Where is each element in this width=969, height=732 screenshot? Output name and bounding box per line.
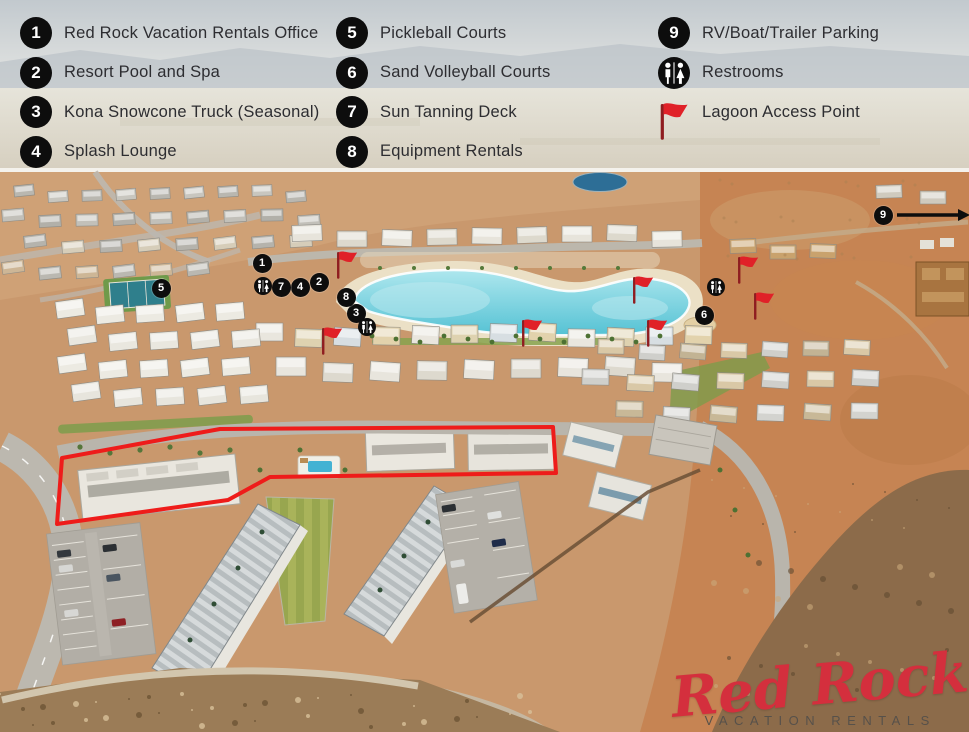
legend-label: Kona Snowcone Truck (Seasonal) (64, 103, 319, 122)
map-legend: 1Red Rock Vacation Rentals Office2Resort… (20, 17, 879, 175)
map-marker-4: 4 (291, 278, 310, 297)
legend-item: 8Equipment Rentals (336, 136, 658, 168)
legend-label: RV/Boat/Trailer Parking (702, 24, 879, 43)
legend-item: 3Kona Snowcone Truck (Seasonal) (20, 96, 336, 128)
legend-number-icon-2: 2 (20, 57, 52, 89)
map-marker-1: 1 (253, 254, 272, 273)
map-marker-8: 8 (337, 288, 356, 307)
legend-label: Sun Tanning Deck (380, 103, 517, 122)
legend-label: Red Rock Vacation Rentals Office (64, 24, 318, 43)
resort-map: 123456789 1Red Rock Vacation Rentals Off… (0, 0, 969, 732)
map-restrooms-marker (707, 278, 725, 296)
map-restrooms-marker (358, 318, 376, 336)
map-marker-6: 6 (695, 306, 714, 325)
map-restrooms-marker (254, 277, 272, 295)
legend-label: Lagoon Access Point (702, 103, 860, 122)
legend-item: 9RV/Boat/Trailer Parking (658, 17, 879, 49)
legend-number-icon-5: 5 (336, 17, 368, 49)
legend-label: Pickleball Courts (380, 24, 506, 43)
legend-item: 7Sun Tanning Deck (336, 96, 658, 128)
legend-column-2: 5Pickleball Courts6Sand Volleyball Court… (336, 17, 658, 175)
legend-label: Restrooms (702, 63, 784, 82)
lagoon-access-flag-marker (645, 317, 669, 347)
legend-number-icon-6: 6 (336, 57, 368, 89)
legend-label: Resort Pool and Spa (64, 63, 220, 82)
legend-item: 2Resort Pool and Spa (20, 57, 336, 89)
legend-item: 1Red Rock Vacation Rentals Office (20, 17, 336, 49)
legend-item: Restrooms (658, 57, 879, 89)
lagoon-access-flag-marker (631, 274, 655, 304)
map-marker-2: 2 (310, 273, 329, 292)
legend-item: 4Splash Lounge (20, 136, 336, 168)
lagoon-access-flag-marker (752, 290, 776, 320)
legend-column-3: 9RV/Boat/Trailer Parking Restrooms Lagoo… (658, 17, 879, 175)
legend-column-1: 1Red Rock Vacation Rentals Office2Resort… (20, 17, 336, 175)
legend-number-icon-1: 1 (20, 17, 52, 49)
legend-number-icon-9: 9 (658, 17, 690, 49)
legend-number-icon-8: 8 (336, 136, 368, 168)
lagoon-access-flag-marker (335, 249, 359, 279)
legend-item: 6Sand Volleyball Courts (336, 57, 658, 89)
lagoon-access-flag-marker (320, 325, 344, 355)
legend-number-icon-4: 4 (20, 136, 52, 168)
legend-item: 5Pickleball Courts (336, 17, 658, 49)
legend-number-icon-3: 3 (20, 96, 52, 128)
lagoon-access-flag-marker (520, 317, 544, 347)
lagoon-access-flag-marker (736, 254, 760, 284)
map-marker-9: 9 (874, 206, 893, 225)
map-marker-7: 7 (272, 278, 291, 297)
map-marker-5: 5 (152, 279, 171, 298)
legend-number-icon-7: 7 (336, 96, 368, 128)
legend-label: Sand Volleyball Courts (380, 63, 550, 82)
legend-label: Equipment Rentals (380, 142, 523, 161)
legend-label: Splash Lounge (64, 142, 177, 161)
legend-item: Lagoon Access Point (658, 96, 879, 128)
parking-direction-arrow (895, 207, 969, 223)
lagoon-flag-icon (658, 84, 690, 140)
